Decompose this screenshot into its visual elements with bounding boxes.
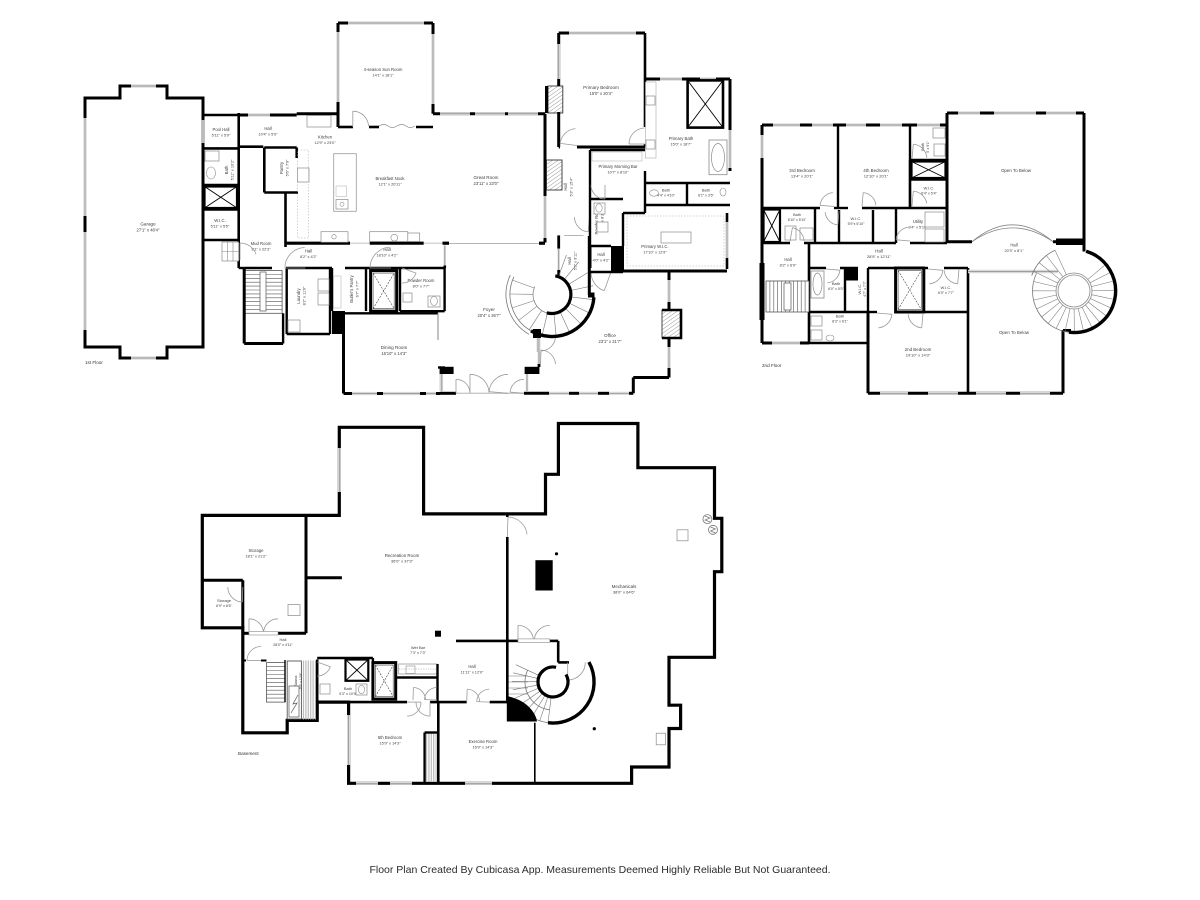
svg-text:28'5" x 12'11": 28'5" x 12'11": [867, 254, 892, 259]
svg-text:Bath: Bath: [662, 188, 670, 193]
svg-text:2nd Floor: 2nd Floor: [762, 363, 782, 368]
svg-text:5'9"x 5'10": 5'9"x 5'10": [848, 222, 865, 226]
svg-text:Hall: Hall: [563, 183, 568, 190]
svg-text:W.I.C.: W.I.C.: [924, 186, 935, 191]
svg-text:Bath: Bath: [224, 165, 229, 174]
svg-text:6'1" x 3'5": 6'1" x 3'5": [698, 194, 714, 198]
svg-text:Breakfast Nook: Breakfast Nook: [375, 176, 405, 181]
svg-text:5'6" x 7'9": 5'6" x 7'9": [285, 159, 289, 176]
svg-text:11'11" x 12'0": 11'11" x 12'0": [461, 670, 484, 674]
svg-text:Bath: Bath: [836, 314, 844, 319]
svg-text:15'0" x 20'4": 15'0" x 20'4": [590, 91, 613, 96]
svg-text:Sauna: Sauna: [294, 675, 298, 687]
svg-text:16'10" x 14'3": 16'10" x 14'3": [381, 351, 407, 356]
svg-text:Primary Bath: Primary Bath: [669, 136, 694, 141]
svg-text:Hall: Hall: [567, 257, 572, 264]
svg-text:Open To Below: Open To Below: [1001, 168, 1032, 173]
svg-text:4'7" x 7'7": 4'7" x 7'7": [863, 280, 867, 296]
svg-text:5'11" x 5'9": 5'11" x 5'9": [212, 133, 231, 137]
svg-text:Dining Room: Dining Room: [381, 345, 408, 350]
svg-text:10'7" x 8'10": 10'7" x 8'10": [607, 170, 629, 174]
svg-text:Storage: Storage: [217, 598, 232, 603]
svg-text:4th Bedroom: 4th Bedroom: [863, 168, 889, 173]
svg-text:6'4" x 5'4": 6'4" x 5'4": [921, 192, 937, 196]
svg-text:Laundry: Laundry: [296, 287, 301, 303]
svg-text:Primary Bedroom: Primary Bedroom: [583, 85, 619, 90]
svg-text:8'3" x 6'1": 8'3" x 6'1": [832, 320, 848, 324]
svg-text:8'10" x 5'10": 8'10" x 5'10": [788, 218, 807, 222]
svg-text:6'7" x 7'7": 6'7" x 7'7": [355, 280, 359, 297]
svg-text:Hall: Hall: [264, 126, 271, 131]
svg-text:20'4" x 26'7": 20'4" x 26'7": [478, 313, 501, 318]
svg-text:Hall: Hall: [305, 249, 312, 254]
svg-text:Storage: Storage: [249, 548, 265, 553]
svg-text:7'3" x 7'3": 7'3" x 7'3": [410, 651, 426, 655]
svg-text:12'1" x 20'11": 12'1" x 20'11": [379, 182, 403, 186]
svg-text:8'2" x 6'9": 8'2" x 6'9": [780, 263, 797, 267]
svg-text:Pantry: Pantry: [279, 161, 284, 174]
svg-text:W.I.C.: W.I.C.: [214, 218, 226, 223]
svg-text:17'10" x 12'9": 17'10" x 12'9": [643, 250, 667, 254]
svg-text:Bath: Bath: [921, 143, 925, 151]
svg-text:Wet Bar: Wet Bar: [411, 645, 426, 650]
svg-text:Recreation Room: Recreation Room: [385, 553, 420, 558]
svg-text:28'0" x 4'11": 28'0" x 4'11": [273, 643, 293, 647]
svg-text:4-season Sun Room: 4-season Sun Room: [364, 67, 403, 72]
svg-text:14'1" x 18'1": 14'1" x 18'1": [372, 73, 394, 77]
svg-text:10'4" x 5'9": 10'4" x 5'9": [259, 132, 279, 136]
svg-text:9'3" x 10'9": 9'3" x 10'9": [299, 672, 303, 690]
svg-text:15'0" x 18'7": 15'0" x 18'7": [670, 142, 692, 146]
svg-text:Powder Room: Powder Room: [408, 278, 435, 283]
svg-text:38'0" x 64'6": 38'0" x 64'6": [613, 590, 636, 595]
svg-text:15'9" x 14'3": 15'9" x 14'3": [379, 741, 401, 745]
svg-text:27'1" x 48'4": 27'1" x 48'4": [137, 227, 160, 232]
svg-text:8'2" x 11'6": 8'2" x 11'6": [302, 286, 306, 305]
svg-text:8'0" x 7'7": 8'0" x 7'7": [413, 284, 430, 288]
svg-text:Hall: Hall: [784, 257, 791, 262]
svg-text:5' x 9'1": 5' x 9'1": [926, 140, 930, 153]
svg-text:Garage: Garage: [140, 222, 156, 227]
svg-text:Exercise Room: Exercise Room: [469, 739, 498, 744]
svg-text:Bath: Bath: [702, 188, 710, 193]
svg-text:19'10" x 14'3": 19'10" x 14'3": [906, 353, 931, 358]
svg-text:Bath: Bath: [344, 686, 352, 691]
svg-text:W.I.C.: W.I.C.: [941, 285, 952, 290]
svg-text:4'0" x 4'2": 4'0" x 4'2": [593, 258, 610, 262]
svg-text:3rd Bedroom: 3rd Bedroom: [789, 168, 815, 173]
svg-text:23'1" x 21'7": 23'1" x 21'7": [599, 339, 622, 344]
svg-text:Floor Plan Created By Cubicasa: Floor Plan Created By Cubicasa App. Meas…: [369, 864, 830, 876]
svg-text:Hall: Hall: [468, 664, 475, 669]
svg-text:5'3" x 15'4": 5'3" x 15'4": [569, 177, 573, 197]
svg-text:8'2" x 4'2": 8'2" x 4'2": [300, 255, 317, 259]
svg-text:Primary Morning Bar: Primary Morning Bar: [599, 164, 639, 169]
svg-text:1st Floor: 1st Floor: [85, 360, 103, 365]
svg-text:5th Bedroom: 5th Bedroom: [378, 735, 403, 740]
svg-text:Utility: Utility: [913, 219, 924, 224]
svg-text:Primary W.I.C.: Primary W.I.C.: [641, 244, 668, 249]
svg-text:Mechanicals: Mechanicals: [612, 584, 637, 589]
svg-text:18'1" x 21'2": 18'1" x 21'2": [245, 554, 267, 558]
svg-text:Bath: Bath: [832, 281, 840, 286]
svg-text:Great Room: Great Room: [473, 175, 498, 180]
svg-text:Hall: Hall: [280, 637, 287, 642]
svg-text:6'0" x 5'0": 6'0" x 5'0": [828, 287, 844, 291]
svg-text:4'4" x 4'10": 4'4" x 4'10": [657, 194, 675, 198]
svg-text:Hall: Hall: [875, 249, 883, 254]
svg-text:18'10" x 4'2": 18'10" x 4'2": [376, 253, 398, 257]
svg-text:Kitchen: Kitchen: [318, 135, 333, 140]
svg-text:Pool Hall: Pool Hall: [212, 127, 229, 132]
svg-text:12'10" x 20'1": 12'10" x 20'1": [864, 174, 889, 179]
svg-text:Hall: Hall: [597, 252, 604, 257]
svg-text:Basement: Basement: [238, 751, 259, 756]
svg-text:Hall: Hall: [1010, 243, 1017, 248]
svg-text:9'3" x 10'9": 9'3" x 10'9": [339, 692, 357, 696]
svg-text:20'3" x 8'1": 20'3" x 8'1": [1005, 249, 1025, 253]
svg-text:5'11" x 5'5": 5'11" x 5'5": [211, 224, 230, 228]
svg-text:Office: Office: [604, 333, 616, 338]
svg-text:23'11" x 23'0": 23'11" x 23'0": [474, 181, 499, 186]
svg-text:2nd Bedroom: 2nd Bedroom: [905, 347, 932, 352]
svg-text:Bath: Bath: [793, 213, 801, 217]
svg-text:Mud Room: Mud Room: [251, 241, 272, 246]
svg-text:W.I.C.: W.I.C.: [851, 216, 862, 221]
svg-text:16'9" x 14'3": 16'9" x 14'3": [472, 745, 494, 749]
svg-text:Butler's Pantry: Butler's Pantry: [349, 274, 354, 302]
svg-text:13'4" x 20'1": 13'4" x 20'1": [791, 174, 814, 179]
svg-text:6'9" x 8'6": 6'9" x 8'6": [216, 604, 232, 608]
svg-text:6'0" x 7'7": 6'0" x 7'7": [938, 291, 954, 295]
svg-text:36'0" x 37'3": 36'0" x 37'3": [391, 559, 414, 564]
svg-text:Open To Below: Open To Below: [999, 330, 1030, 335]
svg-text:W.I.C.: W.I.C.: [857, 284, 862, 295]
svg-text:5'11" x 10'2": 5'11" x 10'2": [230, 159, 234, 180]
svg-text:Foyer: Foyer: [483, 307, 495, 312]
svg-text:12'9" x 23'0": 12'9" x 23'0": [314, 141, 336, 145]
